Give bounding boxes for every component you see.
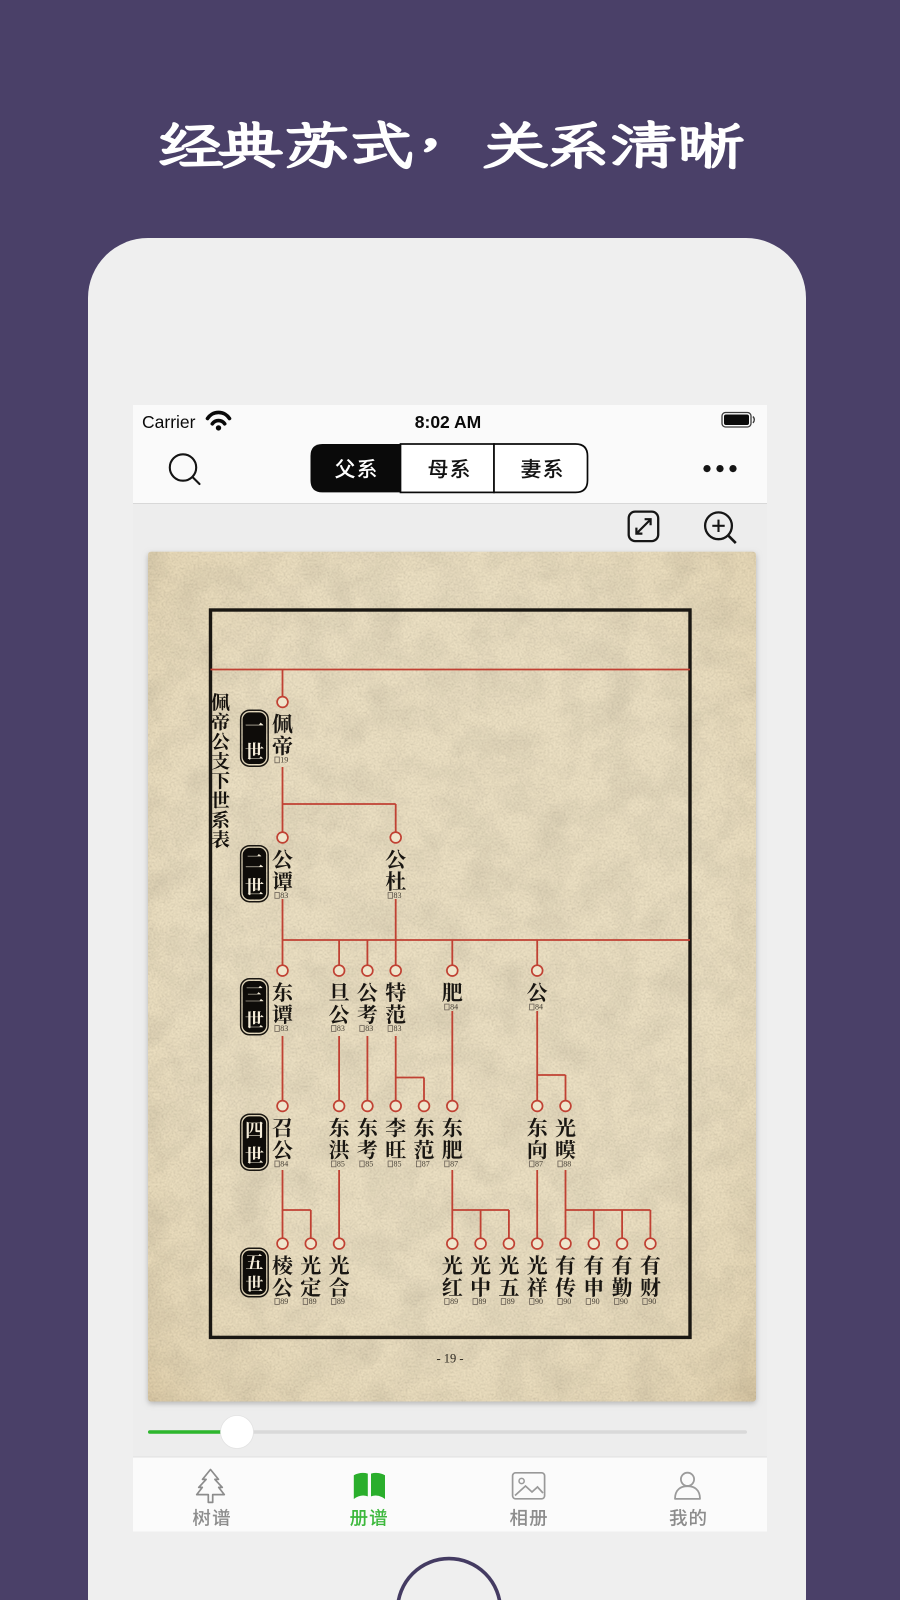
svg-text:87: 87 [535, 1160, 543, 1169]
svg-text:- 19 -: - 19 - [436, 1352, 463, 1366]
svg-text:90: 90 [563, 1297, 571, 1306]
svg-text:84: 84 [450, 1003, 458, 1012]
svg-text:90: 90 [592, 1297, 600, 1306]
svg-text:89: 89 [309, 1297, 317, 1306]
svg-text:83: 83 [280, 1024, 288, 1033]
svg-text:89: 89 [507, 1297, 515, 1306]
svg-text:85: 85 [365, 1160, 373, 1169]
svg-text:83: 83 [337, 1024, 345, 1033]
svg-text:19: 19 [280, 756, 288, 765]
svg-text:85: 85 [337, 1160, 345, 1169]
svg-text:88: 88 [563, 1160, 571, 1169]
svg-text:87: 87 [450, 1160, 458, 1169]
svg-text:84: 84 [280, 1160, 288, 1169]
svg-text:90: 90 [648, 1297, 656, 1306]
svg-text:89: 89 [337, 1297, 345, 1306]
svg-text:90: 90 [620, 1297, 628, 1306]
svg-text:90: 90 [535, 1297, 543, 1306]
svg-text:83: 83 [365, 1024, 373, 1033]
svg-text:87: 87 [422, 1160, 430, 1169]
svg-text:83: 83 [280, 891, 288, 900]
svg-text:85: 85 [394, 1160, 402, 1169]
svg-text:89: 89 [280, 1297, 288, 1306]
svg-text:89: 89 [450, 1297, 458, 1306]
svg-text:Carrier: Carrier [142, 412, 196, 432]
svg-text:84: 84 [535, 1003, 543, 1012]
svg-text:89: 89 [478, 1297, 486, 1306]
svg-text:8:02 AM: 8:02 AM [415, 412, 481, 432]
svg-text:83: 83 [394, 891, 402, 900]
svg-text:83: 83 [394, 1024, 402, 1033]
